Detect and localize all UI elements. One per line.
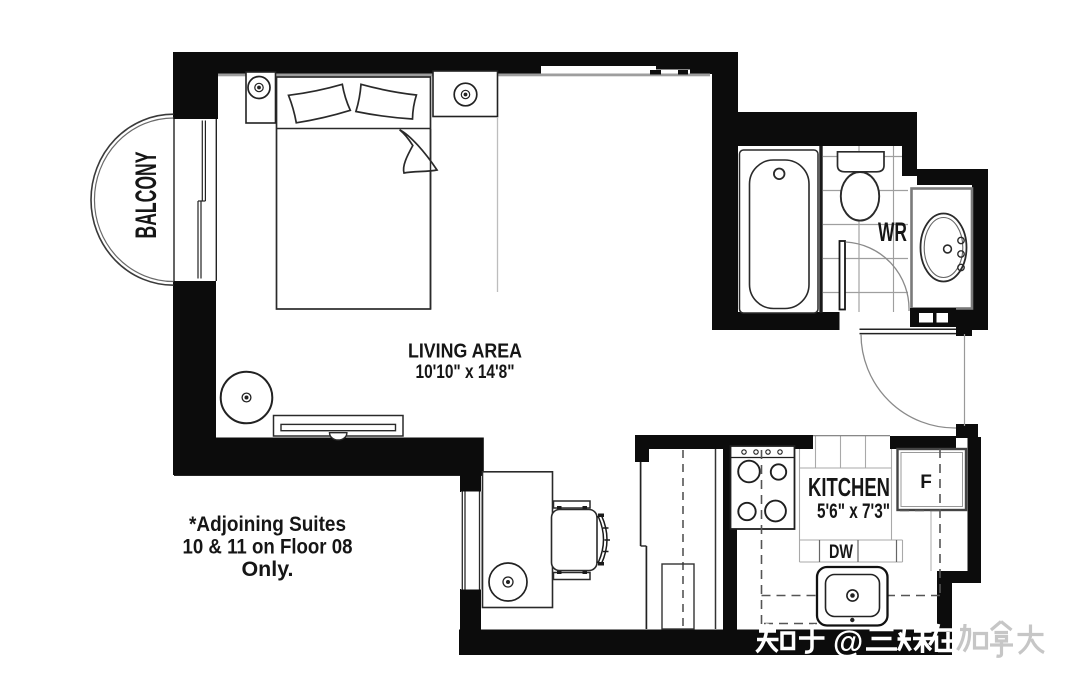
svg-text:5'6" x 7'3": 5'6" x 7'3": [817, 500, 890, 523]
svg-text:WR: WR: [878, 217, 907, 247]
svg-text:10'10" x 14'8": 10'10" x 14'8": [416, 362, 515, 383]
svg-text:10 & 11 on Floor 08: 10 & 11 on Floor 08: [183, 536, 353, 559]
svg-text:KITCHEN: KITCHEN: [808, 472, 890, 502]
svg-text:LIVING AREA: LIVING AREA: [408, 340, 522, 363]
svg-text:F: F: [920, 472, 932, 493]
svg-text:Only.: Only.: [242, 558, 294, 581]
svg-text:BALCONY: BALCONY: [130, 152, 163, 239]
svg-text:*Adjoining Suites: *Adjoining Suites: [189, 513, 346, 536]
svg-text:DW: DW: [829, 542, 853, 563]
svg-text:@: @: [833, 624, 863, 659]
